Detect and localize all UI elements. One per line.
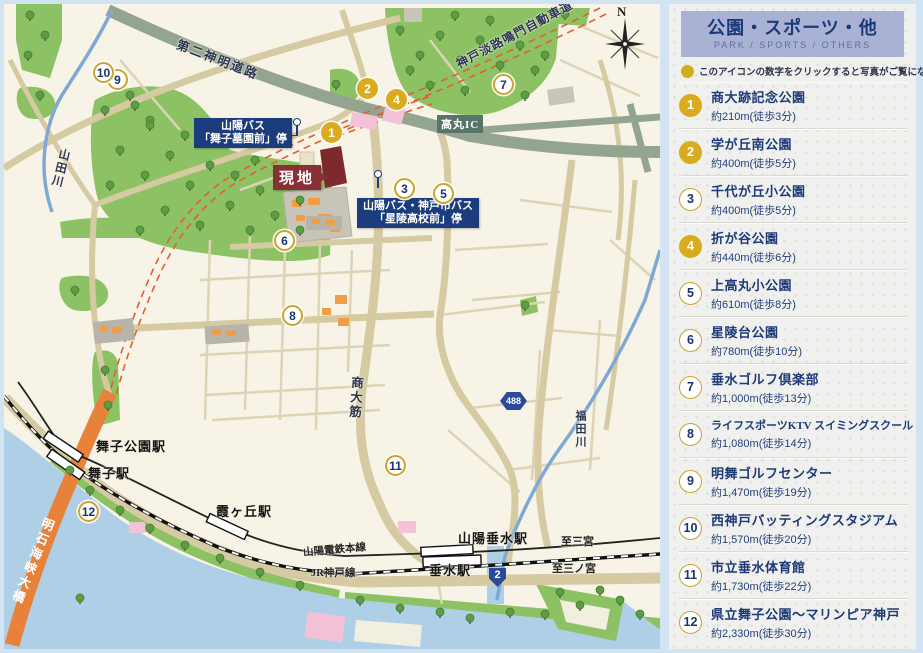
label-yamada-river: 山田川 — [47, 147, 72, 190]
legend-items: 1 商大跡記念公園 約210m(徒歩3分) 2 学が丘南公園 約400m(徒歩5… — [669, 82, 916, 645]
label-shodai-street: 商大筋 — [345, 375, 367, 420]
route-2-badge: 2 — [489, 568, 506, 587]
legend-item[interactable]: 11 市立垂水体育館 約1,730m(徒歩22分) — [679, 552, 908, 599]
marker-number: 12 — [82, 505, 95, 519]
legend-item-distance: 約1,470m(徒歩19分) — [711, 484, 833, 500]
legend-item-number-badge: 10 — [679, 517, 702, 540]
legend-item-name: 明舞ゴルフセンター — [711, 463, 833, 482]
legend-note-text: このアイコンの数字をクリックすると写真がご覧になれます。 — [699, 64, 923, 78]
legend-item-name: 千代が丘小公園 — [711, 181, 806, 200]
label-to-sannomiya-upper: 至三宮 — [561, 533, 594, 549]
marker-number: 2 — [364, 82, 371, 96]
bus-stop-label-seiryo-kokomae: 山陽バス・神戸市バス 「星陵高校前」停 — [357, 198, 479, 228]
map-marker[interactable]: 3 — [394, 178, 415, 199]
marker-number: 11 — [389, 459, 402, 473]
legend-item-number-badge: 7 — [679, 376, 702, 399]
bus2-line2: 「星陵高校前」停 — [360, 213, 476, 226]
legend-title: 公園・スポーツ・他 — [707, 18, 878, 38]
label-daini-shinmei-road: 第二神明道路 — [174, 34, 262, 83]
route-488-badge: 488 — [500, 392, 527, 410]
label-kobe-awaji-expressway: 神戸淡路鳴門自動車道 — [453, 4, 576, 72]
yellow-dot-icon — [681, 65, 694, 78]
legend-item-number: 9 — [687, 474, 694, 488]
label-jr-kobe-line: JR神戸線 — [311, 565, 355, 580]
legend-item[interactable]: 7 垂水ゴルフ倶楽部 約1,000m(徒歩13分) — [679, 364, 908, 411]
station-label-sanyo-tarumi: 山陽垂水駅 — [458, 528, 528, 547]
compass-north-label: N — [617, 4, 626, 20]
legend-item-number: 8 — [687, 427, 694, 441]
page: { "sidebar": { "title": "公園・スポーツ・他", "su… — [0, 0, 923, 653]
legend-item-number: 3 — [687, 192, 694, 206]
legend-item-distance: 約400m(徒歩5分) — [711, 202, 806, 218]
map-marker[interactable]: 7 — [493, 74, 514, 95]
map-marker[interactable]: 4 — [386, 89, 407, 110]
map-marker[interactable]: 8 — [282, 305, 303, 326]
marker-number: 9 — [114, 73, 121, 87]
legend-item[interactable]: 1 商大跡記念公園 約210m(徒歩3分) — [679, 82, 908, 129]
legend-item-name: ライフスポーツKTV スイミングスクール — [711, 417, 908, 433]
legend-header: 公園・スポーツ・他 PARK / SPORTS / OTHERS — [681, 11, 904, 57]
legend-item-number-badge: 11 — [679, 564, 702, 587]
map-marker[interactable]: 10 — [93, 62, 114, 83]
legend-item[interactable]: 6 星陵台公園 約780m(徒歩10分) — [679, 317, 908, 364]
legend-item[interactable]: 9 明舞ゴルフセンター 約1,470m(徒歩19分) — [679, 458, 908, 505]
legend-item-number-badge: 9 — [679, 470, 702, 493]
legend-item-number: 2 — [687, 145, 694, 159]
site-label: 現地 — [273, 165, 321, 190]
legend-item-name: 県立舞子公園〜マリンピア神戸 — [711, 604, 900, 623]
label-sanyo-line: 山陽電鉄本線 — [302, 539, 366, 559]
legend-item-distance: 約1,080m(徒歩14分) — [711, 435, 908, 451]
marker-number: 4 — [393, 93, 400, 107]
legend-item-number: 4 — [687, 239, 694, 253]
map-marker[interactable]: 5 — [433, 183, 454, 204]
legend-subtitle: PARK / SPORTS / OTHERS — [714, 40, 871, 50]
legend-item-distance: 約1,730m(徒歩22分) — [711, 578, 811, 594]
legend-item-name: 上高丸小公園 — [711, 275, 796, 294]
marker-number: 7 — [500, 78, 507, 92]
legend-item-name: 垂水ゴルフ倶楽部 — [711, 369, 819, 388]
bus-stop-icon — [292, 118, 302, 136]
map-marker[interactable]: 6 — [274, 230, 295, 251]
legend-item-number-badge: 6 — [679, 329, 702, 352]
legend-item-number-badge: 1 — [679, 94, 702, 117]
legend-item-name: 折が谷公園 — [711, 228, 796, 247]
legend-item-number: 11 — [684, 568, 697, 582]
label-fukuda-river: 福田川 — [572, 410, 588, 449]
legend-item-number-badge: 8 — [679, 423, 702, 446]
legend-item-distance: 約610m(徒歩8分) — [711, 296, 796, 312]
map-marker[interactable]: 11 — [385, 455, 406, 476]
bus-stop-label-maiko-boen: 山陽バス 「舞子墓園前」停 — [194, 118, 292, 148]
legend-item-number: 5 — [687, 286, 694, 300]
bus1-line2: 「舞子墓園前」停 — [197, 133, 289, 146]
legend-item[interactable]: 4 折が谷公園 約440m(徒歩6分) — [679, 223, 908, 270]
legend-item-number: 6 — [687, 333, 694, 347]
marker-number: 3 — [401, 182, 408, 196]
legend-item-name: 星陵台公園 — [711, 322, 802, 341]
legend-item-name: 市立垂水体育館 — [711, 557, 811, 576]
station-label-tarumi: 垂水駅 — [429, 560, 471, 579]
legend-item[interactable]: 8 ライフスポーツKTV スイミングスクール 約1,080m(徒歩14分) — [679, 411, 908, 458]
station-label-kasumigaoka: 霞ヶ丘駅 — [216, 501, 272, 520]
marker-number: 5 — [440, 187, 447, 201]
marker-number: 10 — [97, 66, 110, 80]
area-map: 第二神明道路 神戸淡路鳴門自動車道 明石海峡大橋 山田川 商大筋 福田川 高丸I… — [4, 4, 660, 649]
takamaru-ic-label: 高丸IC — [437, 115, 483, 133]
legend-item-distance: 約780m(徒歩10分) — [711, 343, 802, 359]
legend-item-distance: 約400m(徒歩5分) — [711, 155, 796, 171]
legend-note: このアイコンの数字をクリックすると写真がご覧になれます。 — [681, 64, 906, 78]
legend-item[interactable]: 3 千代が丘小公園 約400m(徒歩5分) — [679, 176, 908, 223]
legend-item-distance: 約440m(徒歩6分) — [711, 249, 796, 265]
legend-item-number: 7 — [687, 380, 694, 394]
legend-sidebar: 公園・スポーツ・他 PARK / SPORTS / OTHERS このアイコンの… — [669, 4, 916, 649]
legend-item-number-badge: 2 — [679, 141, 702, 164]
map-marker[interactable]: 2 — [357, 78, 378, 99]
legend-item-number-badge: 5 — [679, 282, 702, 305]
legend-item-name: 学が丘南公園 — [711, 134, 796, 153]
legend-item[interactable]: 5 上高丸小公園 約610m(徒歩8分) — [679, 270, 908, 317]
marker-number: 1 — [328, 126, 335, 140]
bus2-line1: 山陽バス・神戸市バス — [360, 200, 476, 213]
legend-item-distance: 約1,000m(徒歩13分) — [711, 390, 819, 406]
legend-item-name: 商大跡記念公園 — [711, 87, 806, 106]
label-to-sannomiya-lower: 至三ノ宮 — [552, 560, 596, 576]
legend-item[interactable]: 10 西神戸バッティングスタジアム 約1,570m(徒歩20分) — [679, 505, 908, 552]
legend-item-distance: 約210m(徒歩3分) — [711, 108, 806, 124]
legend-item-number: 10 — [684, 521, 698, 535]
marker-number: 6 — [281, 234, 288, 248]
legend-item-number: 1 — [687, 98, 694, 112]
legend-item[interactable]: 2 学が丘南公園 約400m(徒歩5分) — [679, 129, 908, 176]
legend-item-number-badge: 12 — [679, 611, 702, 634]
legend-item[interactable]: 12 県立舞子公園〜マリンピア神戸 約2,330m(徒歩30分) — [679, 599, 908, 645]
map-overlay: 第二神明道路 神戸淡路鳴門自動車道 明石海峡大橋 山田川 商大筋 福田川 高丸I… — [4, 4, 660, 649]
marker-number: 8 — [289, 309, 296, 323]
legend-item-distance: 約1,570m(徒歩20分) — [711, 531, 898, 547]
bus1-line1: 山陽バス — [197, 120, 289, 133]
map-marker[interactable]: 1 — [321, 122, 342, 143]
legend-item-number-badge: 3 — [679, 188, 702, 211]
station-label-maiko-koen: 舞子公園駅 — [96, 436, 166, 455]
map-marker[interactable]: 12 — [78, 501, 99, 522]
station-label-maiko: 舞子駅 — [88, 463, 130, 482]
legend-item-distance: 約2,330m(徒歩30分) — [711, 625, 900, 641]
legend-item-number: 12 — [684, 615, 698, 629]
bus-stop-icon — [373, 170, 383, 188]
legend-item-name: 西神戸バッティングスタジアム — [711, 510, 898, 529]
legend-item-number-badge: 4 — [679, 235, 702, 258]
label-akashi-bridge: 明石海峡大橋 — [6, 514, 58, 607]
